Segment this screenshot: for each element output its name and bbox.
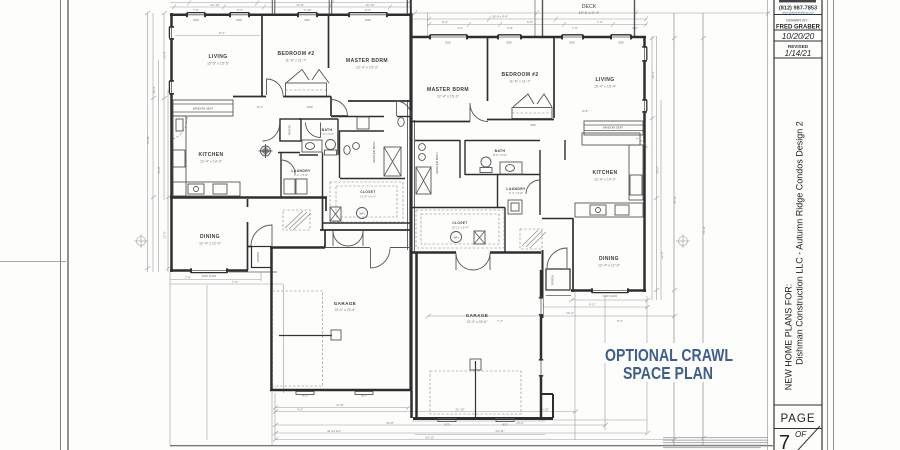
svg-text:3050: 3050 bbox=[304, 18, 310, 22]
svg-text:11'-6" x 11'-7": 11'-6" x 11'-7" bbox=[285, 59, 307, 63]
svg-text:12'-11" x 6'-4": 12'-11" x 6'-4" bbox=[452, 225, 469, 229]
svg-text:LIVING: LIVING bbox=[208, 54, 227, 60]
svg-text:5'-10": 5'-10" bbox=[304, 8, 312, 12]
svg-text:7'-4": 7'-4" bbox=[232, 280, 238, 284]
svg-text:15'-4" x 15'-4": 15'-4" x 15'-4" bbox=[594, 85, 617, 89]
svg-text:7'-6": 7'-6" bbox=[185, 276, 191, 280]
svg-text:www.graberdrafting.com: www.graberdrafting.com bbox=[782, 11, 815, 15]
svg-text:7'-6": 7'-6" bbox=[572, 26, 578, 30]
svg-text:28'-4": 28'-4" bbox=[152, 86, 156, 94]
svg-text:7: 7 bbox=[779, 432, 790, 450]
svg-text:DINING: DINING bbox=[200, 234, 220, 240]
svg-text:12'-4" x 15'-3": 12'-4" x 15'-3" bbox=[356, 66, 379, 70]
svg-text:3050: 3050 bbox=[569, 41, 575, 45]
svg-text:9070: 9070 bbox=[302, 394, 308, 398]
svg-text:LIVING: LIVING bbox=[595, 77, 614, 83]
svg-text:63'-11": 63'-11" bbox=[425, 436, 434, 440]
svg-text:12'-4" x 15'-3": 12'-4" x 15'-3" bbox=[437, 95, 460, 99]
svg-text:FRED GRABER: FRED GRABER bbox=[776, 24, 821, 30]
svg-text:BEDROOM #2: BEDROOM #2 bbox=[501, 72, 538, 78]
svg-text:6050: 6050 bbox=[445, 41, 451, 45]
svg-text:WINDOW SEAT: WINDOW SEAT bbox=[193, 107, 213, 111]
svg-text:14'-2": 14'-2" bbox=[656, 166, 660, 174]
svg-text:15'-5" x 15'-5": 15'-5" x 15'-5" bbox=[207, 62, 230, 66]
svg-text:KITCHEN: KITCHEN bbox=[198, 152, 223, 158]
svg-text:17'-8": 17'-8" bbox=[336, 403, 344, 407]
svg-text:12'-4" x 12'-0": 12'-4" x 12'-0" bbox=[598, 264, 621, 268]
svg-text:WH: WH bbox=[454, 236, 459, 240]
svg-text:5'-8": 5'-8" bbox=[527, 20, 533, 24]
svg-text:CLOSET: CLOSET bbox=[360, 190, 375, 194]
svg-text:DINING: DINING bbox=[599, 256, 619, 262]
svg-text:9070: 9070 bbox=[444, 423, 450, 427]
svg-text:9'-2": 9'-2" bbox=[365, 8, 371, 12]
svg-text:74'-11": 74'-11" bbox=[146, 135, 150, 144]
svg-text:15'-5": 15'-5" bbox=[163, 51, 167, 59]
svg-text:KITCHEN: KITCHEN bbox=[592, 170, 617, 176]
svg-text:5'-4" x 5'-8": 5'-4" x 5'-8" bbox=[509, 191, 523, 195]
svg-text:22'-0" x 23'-6": 22'-0" x 23'-6" bbox=[467, 320, 489, 324]
svg-text:SPACE PLAN: SPACE PLAN bbox=[623, 363, 713, 383]
svg-text:6050: 6050 bbox=[365, 18, 371, 22]
svg-text:21'-10": 21'-10" bbox=[455, 408, 464, 412]
svg-text:MASTER BDRM: MASTER BDRM bbox=[346, 58, 388, 64]
svg-text:7'-6": 7'-6" bbox=[193, 8, 199, 12]
svg-text:4050: 4050 bbox=[530, 123, 536, 127]
svg-text:12'-0": 12'-0" bbox=[163, 231, 167, 239]
svg-text:4'-10": 4'-10" bbox=[541, 408, 549, 412]
svg-text:12'-0": 12'-0" bbox=[660, 251, 664, 259]
svg-text:PANTRY: PANTRY bbox=[288, 125, 292, 136]
svg-text:10'-10": 10'-10" bbox=[365, 3, 374, 7]
svg-text:3050: 3050 bbox=[236, 18, 242, 22]
svg-text:47'-9": 47'-9" bbox=[673, 196, 677, 204]
svg-text:5'-4": 5'-4" bbox=[617, 319, 623, 323]
svg-text:74'-11": 74'-11" bbox=[702, 225, 706, 234]
svg-text:3050: 3050 bbox=[193, 18, 199, 22]
svg-text:16'-0 x 9'-4": 16'-0 x 9'-4" bbox=[492, 15, 508, 19]
svg-text:BEDROOM #2: BEDROOM #2 bbox=[277, 51, 314, 57]
svg-text:5050: 5050 bbox=[307, 105, 313, 109]
svg-text:12'-0" x 6'-4": 12'-0" x 6'-4" bbox=[360, 194, 376, 198]
svg-text:3050: 3050 bbox=[506, 41, 512, 45]
svg-text:7'-0" x 5'-0": 7'-0" x 5'-0" bbox=[320, 132, 334, 136]
svg-text:OF: OF bbox=[795, 430, 807, 439]
svg-text:7'-2": 7'-2" bbox=[597, 20, 603, 24]
svg-text:8'-0" x 5'-0": 8'-0" x 5'-0" bbox=[493, 153, 507, 157]
svg-text:9070: 9070 bbox=[361, 394, 367, 398]
svg-text:14'-8": 14'-8" bbox=[296, 3, 304, 7]
svg-text:24'-10": 24'-10" bbox=[210, 3, 219, 7]
svg-text:MASTER BATH: MASTER BATH bbox=[372, 141, 376, 162]
svg-text:22'-0" x 23'-6": 22'-0" x 23'-6" bbox=[335, 308, 357, 312]
svg-text:6040 SLDR: 6040 SLDR bbox=[603, 294, 617, 298]
svg-text:12'-4" x 14'-2": 12'-4" x 14'-2" bbox=[200, 160, 223, 164]
svg-text:OPTIONAL CRAWL: OPTIONAL CRAWL bbox=[605, 345, 733, 365]
svg-text:6040 SLDR: 6040 SLDR bbox=[202, 274, 216, 278]
svg-text:GARAGE: GARAGE bbox=[466, 313, 489, 318]
svg-text:PORCH: PORCH bbox=[256, 252, 260, 262]
svg-text:11'-6" x 11'-7": 11'-6" x 11'-7" bbox=[509, 80, 531, 84]
svg-text:44'-11 1/2": 44'-11 1/2" bbox=[327, 429, 341, 433]
svg-text:24'-11": 24'-11" bbox=[495, 429, 504, 433]
svg-text:11'-2": 11'-2" bbox=[257, 105, 263, 109]
svg-text:12'-4": 12'-4" bbox=[566, 311, 574, 315]
svg-text:1/14/21: 1/14/21 bbox=[785, 49, 812, 58]
svg-text:MASTER BATH: MASTER BATH bbox=[435, 152, 439, 173]
svg-text:16'-8": 16'-8" bbox=[582, 109, 589, 113]
svg-text:12'-4" x 14'-2": 12'-4" x 14'-2" bbox=[594, 178, 617, 182]
svg-text:6'-8": 6'-8" bbox=[507, 26, 513, 30]
svg-text:GARAGE: GARAGE bbox=[334, 301, 357, 306]
svg-text:WINDOW SEAT: WINDOW SEAT bbox=[603, 126, 623, 130]
svg-text:10'-0 x 9'-4": 10'-0 x 9'-4" bbox=[579, 10, 601, 15]
svg-text:5'-4" x 5'-8": 5'-4" x 5'-8" bbox=[294, 173, 308, 177]
svg-text:PAGE: PAGE bbox=[780, 413, 815, 425]
svg-text:9'-2": 9'-2" bbox=[589, 303, 595, 307]
svg-text:NEW HOME PLANS FOR:: NEW HOME PLANS FOR: bbox=[784, 284, 794, 391]
svg-text:5'-4": 5'-4" bbox=[237, 8, 243, 12]
svg-text:17'-1": 17'-1" bbox=[219, 31, 226, 35]
svg-text:26'-8": 26'-8" bbox=[386, 421, 394, 425]
svg-text:12'-4" x 12'-0": 12'-4" x 12'-0" bbox=[199, 242, 222, 246]
svg-text:3050: 3050 bbox=[618, 41, 624, 45]
svg-text:PORCH: PORCH bbox=[551, 275, 555, 285]
svg-text:10/20/20: 10/20/20 bbox=[782, 31, 815, 41]
svg-text:6'-4": 6'-4" bbox=[442, 20, 448, 24]
svg-text:7'-4": 7'-4" bbox=[497, 319, 503, 323]
svg-text:4'-0": 4'-0" bbox=[297, 408, 303, 412]
svg-text:Dishman Construction LLC - Aut: Dishman Construction LLC - Autumn Ridge … bbox=[795, 121, 805, 365]
svg-text:MASTER BDRM: MASTER BDRM bbox=[427, 87, 469, 93]
svg-text:15'-4": 15'-4" bbox=[651, 71, 655, 79]
svg-text:4'-6": 4'-6" bbox=[457, 26, 463, 30]
svg-text:9070: 9070 bbox=[502, 423, 508, 427]
svg-text:15'-8": 15'-8" bbox=[157, 166, 161, 174]
svg-text:DRAWN BY :: DRAWN BY : bbox=[786, 18, 810, 23]
svg-text:WH: WH bbox=[360, 212, 365, 216]
svg-text:15'-2": 15'-2" bbox=[516, 421, 524, 425]
svg-text:CLOSET: CLOSET bbox=[452, 221, 467, 225]
